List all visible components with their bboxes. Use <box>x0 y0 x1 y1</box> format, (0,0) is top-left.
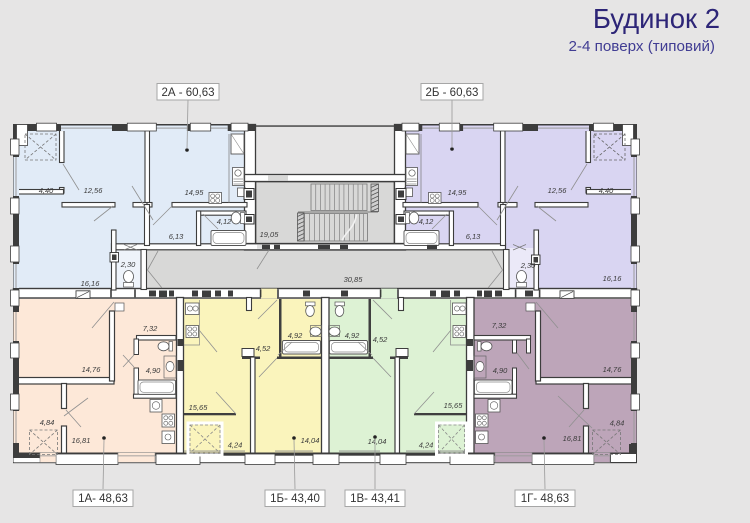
svg-text:16,81: 16,81 <box>72 436 91 445</box>
svg-text:1В- 43,41: 1В- 43,41 <box>350 493 400 505</box>
svg-text:12,56: 12,56 <box>84 186 104 195</box>
svg-text:12,56: 12,56 <box>548 186 568 195</box>
svg-text:4,90: 4,90 <box>146 366 161 375</box>
svg-text:2,30: 2,30 <box>520 261 536 270</box>
svg-text:4,12: 4,12 <box>419 217 434 226</box>
svg-text:14,04: 14,04 <box>368 437 387 446</box>
svg-text:2,30: 2,30 <box>120 260 136 269</box>
svg-text:4,52: 4,52 <box>256 344 271 353</box>
svg-text:14,95: 14,95 <box>185 188 205 197</box>
svg-text:4,84: 4,84 <box>610 419 625 428</box>
svg-text:14,76: 14,76 <box>82 365 102 374</box>
svg-text:4,24: 4,24 <box>228 441 243 450</box>
svg-text:4,12: 4,12 <box>217 217 232 226</box>
svg-text:14,76: 14,76 <box>603 365 623 374</box>
svg-text:4,24: 4,24 <box>419 441 434 450</box>
svg-text:7,32: 7,32 <box>143 324 158 333</box>
svg-text:16,16: 16,16 <box>603 274 623 283</box>
svg-text:4,92: 4,92 <box>345 331 360 340</box>
svg-text:1Б- 43,40: 1Б- 43,40 <box>270 493 320 505</box>
svg-text:1Г- 48,63: 1Г- 48,63 <box>521 493 569 505</box>
svg-text:4,52: 4,52 <box>373 335 388 344</box>
svg-text:6,13: 6,13 <box>169 232 184 241</box>
svg-text:4,92: 4,92 <box>288 331 303 340</box>
svg-text:14,04: 14,04 <box>301 436 320 445</box>
svg-text:19,05: 19,05 <box>260 230 280 239</box>
svg-text:2Б - 60,63: 2Б - 60,63 <box>426 87 479 99</box>
svg-text:4,40: 4,40 <box>599 186 614 195</box>
svg-text:16,81: 16,81 <box>563 434 582 443</box>
svg-text:4,90: 4,90 <box>493 366 508 375</box>
svg-text:1А- 48,63: 1А- 48,63 <box>78 493 128 505</box>
svg-text:6,13: 6,13 <box>466 232 481 241</box>
svg-text:4,40: 4,40 <box>39 186 54 195</box>
svg-text:15,65: 15,65 <box>444 401 464 410</box>
svg-text:30,85: 30,85 <box>344 275 364 284</box>
svg-text:7,32: 7,32 <box>492 321 507 330</box>
svg-text:14,95: 14,95 <box>448 188 468 197</box>
svg-text:2-4 поверх (типовий): 2-4 поверх (типовий) <box>568 38 715 55</box>
svg-text:4,84: 4,84 <box>40 418 55 427</box>
svg-text:15,65: 15,65 <box>189 403 209 412</box>
svg-text:16,16: 16,16 <box>81 279 101 288</box>
svg-text:Будинок 2: Будинок 2 <box>593 3 720 34</box>
svg-text:2А - 60,63: 2А - 60,63 <box>161 87 214 99</box>
